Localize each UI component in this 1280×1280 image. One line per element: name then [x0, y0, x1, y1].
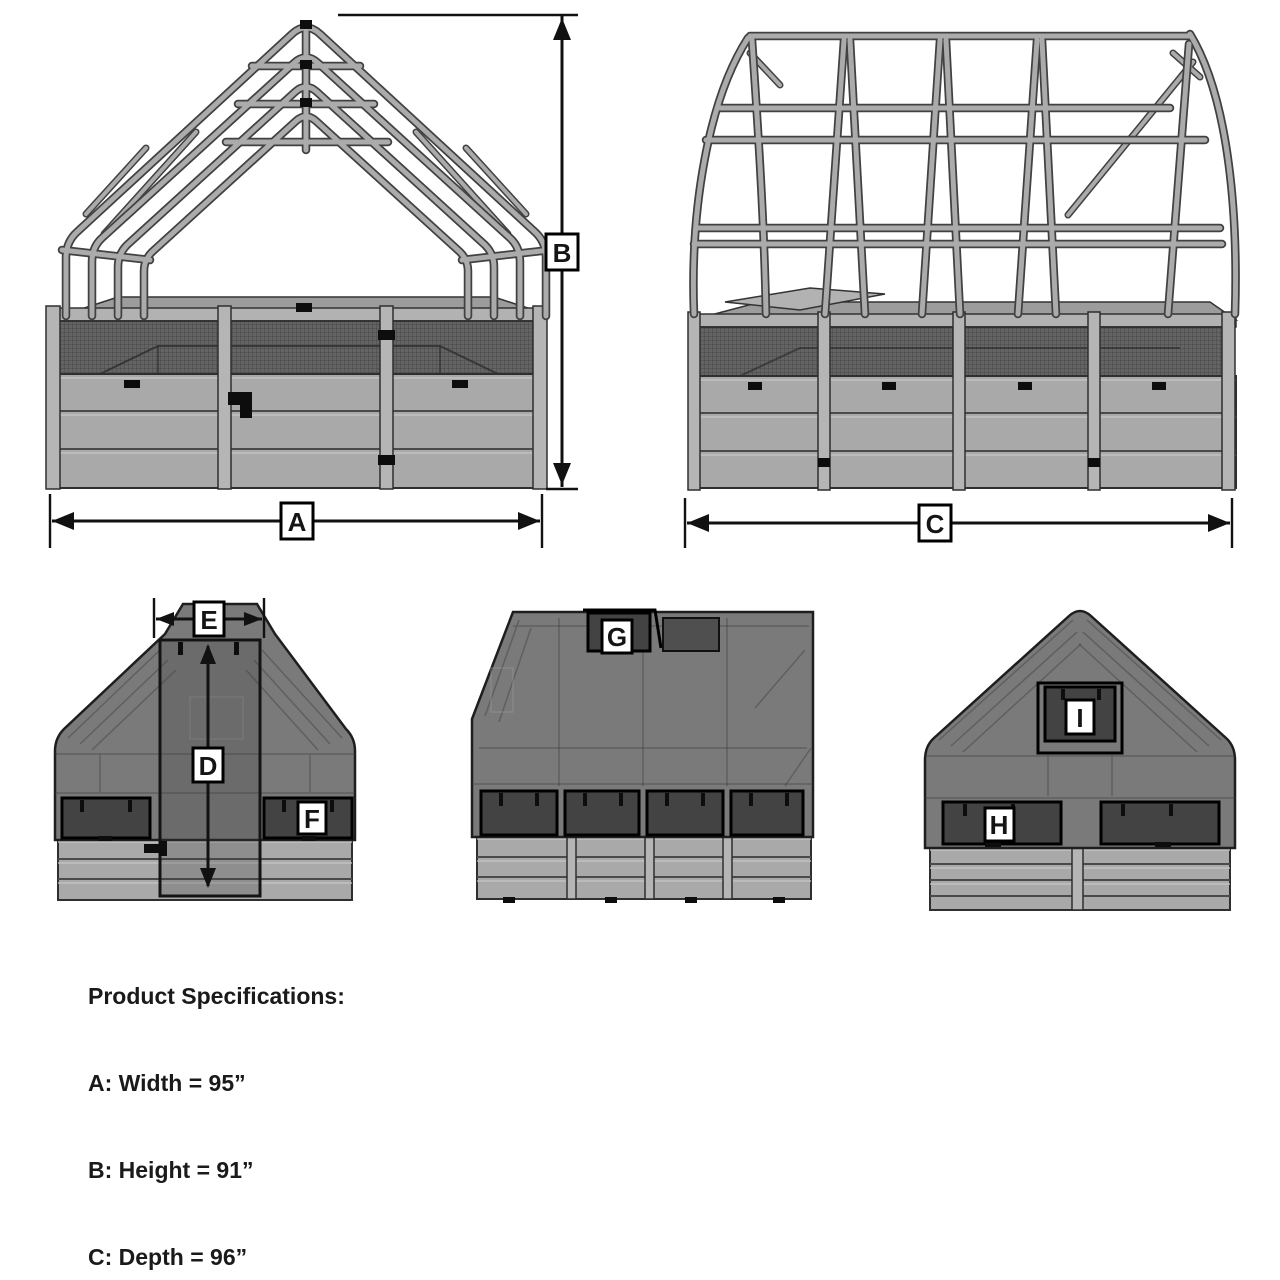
dimension-label-i: I	[1066, 700, 1094, 734]
dimension-label-f: F	[298, 802, 326, 834]
dimension-c: C	[685, 498, 1232, 548]
dimension-label-d: D	[193, 748, 223, 782]
front-screen-left	[62, 798, 150, 838]
product-specifications: Product Specifications: A: Width = 95” B…	[88, 924, 738, 1280]
specs-title: Product Specifications:	[88, 982, 738, 1011]
front-hoop-frame	[62, 20, 550, 316]
spec-line-b: B: Height = 91”	[88, 1156, 738, 1185]
rear-netting-diagram: I H	[905, 588, 1255, 928]
front-base-planter	[46, 297, 547, 489]
svg-text:D: D	[199, 751, 218, 781]
front-corner-post-right	[533, 306, 547, 489]
side-hoop-frame	[693, 34, 1235, 314]
dimension-label-b: B	[546, 234, 578, 270]
front-view-diagram: A B	[0, 0, 600, 560]
product-spec-sheet: A B	[0, 0, 1280, 1280]
front-mesh-band	[52, 321, 541, 374]
front-netting-diagram: E D F	[40, 588, 370, 928]
spec-line-a: A: Width = 95”	[88, 1069, 738, 1098]
dimension-label-c: C	[919, 505, 951, 541]
side-netting-diagram: G	[455, 588, 855, 928]
dimension-a: A	[50, 494, 542, 548]
svg-text:A: A	[288, 507, 307, 537]
svg-text:F: F	[304, 804, 320, 834]
door-hinge-bottom	[378, 455, 395, 465]
dimension-label-e: E	[194, 602, 224, 636]
dimension-label-h: H	[985, 808, 1014, 841]
roof-screen-2	[663, 618, 719, 651]
svg-text:G: G	[607, 622, 627, 652]
dimension-label-g: G	[602, 620, 632, 653]
svg-text:B: B	[553, 238, 572, 268]
door-hinge-top	[378, 330, 395, 340]
side-base-planter	[688, 288, 1236, 490]
spec-line-c: C: Depth = 96”	[88, 1243, 738, 1272]
svg-text:E: E	[200, 605, 217, 635]
svg-text:H: H	[990, 810, 1009, 840]
svg-text:C: C	[926, 509, 945, 539]
front-corner-post-left	[46, 306, 60, 489]
rear-netting-planks	[930, 846, 1230, 910]
side-netting-planks	[477, 835, 811, 903]
svg-text:I: I	[1076, 703, 1083, 733]
dimension-label-a: A	[281, 503, 313, 539]
side-view-diagram: C	[660, 0, 1260, 560]
front-planks	[48, 374, 545, 488]
